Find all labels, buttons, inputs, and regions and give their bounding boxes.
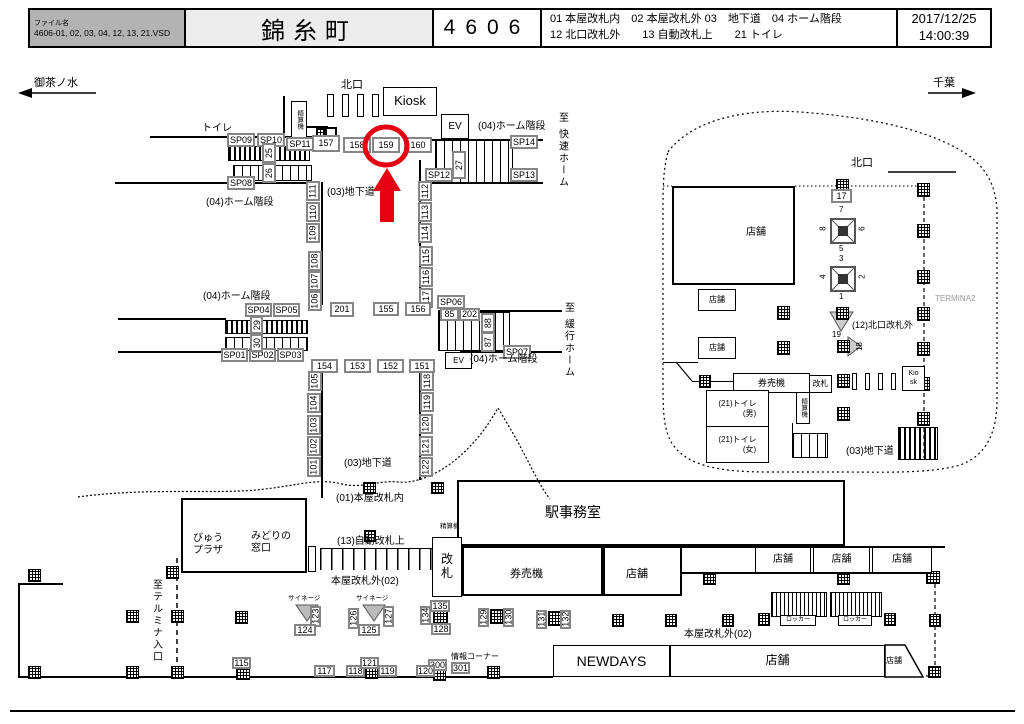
label-110: 110 bbox=[306, 202, 320, 222]
pillar bbox=[928, 666, 941, 678]
label-サイネージ: サイネージ bbox=[288, 595, 320, 602]
wall bbox=[18, 676, 553, 678]
label-113: 113 bbox=[418, 202, 432, 222]
pillar bbox=[917, 224, 930, 238]
pillar bbox=[837, 374, 850, 388]
label-118: 118 bbox=[420, 371, 434, 391]
label-18: 18 bbox=[854, 340, 864, 354]
label-101: 101 bbox=[307, 457, 321, 477]
label-106: 106 bbox=[308, 291, 322, 311]
label-121: 121 bbox=[360, 657, 379, 669]
label-159: 159 bbox=[372, 137, 400, 153]
label-17: 17 bbox=[831, 189, 852, 203]
pillar bbox=[837, 407, 850, 421]
label-TERMINA2: TERMINA2 bbox=[935, 294, 975, 303]
label-(21)トイレ-(女): (21)トイレ (女) bbox=[706, 426, 769, 463]
ticket-gate-slot bbox=[342, 94, 349, 117]
label-(04)ホーム階段: (04)ホーム階段 bbox=[470, 354, 537, 366]
label-店舗: 店舗 bbox=[698, 289, 736, 311]
title-bar: ファイル名 4606-01, 02, 03, 04, 12, 13, 21.VS… bbox=[28, 8, 1000, 48]
label-87: 87 bbox=[481, 332, 495, 352]
label-店舗: 店舗 bbox=[698, 337, 736, 359]
pillar bbox=[917, 270, 930, 284]
label-132: 132 bbox=[560, 610, 571, 629]
ticket-gate-slot bbox=[865, 373, 870, 390]
pillar bbox=[703, 573, 716, 585]
wall bbox=[115, 182, 320, 184]
label-128: 128 bbox=[431, 623, 451, 635]
label-みどりの-窓口: みどりの 窓口 bbox=[251, 531, 291, 554]
label-114: 114 bbox=[418, 223, 432, 243]
label-8: 8 bbox=[818, 223, 828, 235]
label-精算機: 精算機 bbox=[291, 101, 307, 138]
label-119: 119 bbox=[420, 392, 434, 412]
label-ロッカー: ロッカー bbox=[838, 615, 872, 626]
label-至-緩行ホーム: 至 緩行ホーム bbox=[562, 298, 574, 383]
pillar bbox=[722, 614, 734, 627]
label-サイネージ: サイネージ bbox=[356, 595, 388, 602]
ticket-gate-slot bbox=[357, 94, 364, 117]
label-3: 3 bbox=[839, 254, 843, 263]
label-27: 27 bbox=[452, 151, 466, 179]
ticket-gate-slot bbox=[327, 94, 334, 117]
wall bbox=[18, 583, 63, 585]
label-NEWDAYS: NEWDAYS bbox=[553, 645, 670, 677]
label-157: 157 bbox=[312, 135, 340, 152]
pillar bbox=[884, 613, 896, 626]
label-119: 119 bbox=[378, 665, 397, 677]
label-改札: 改札 bbox=[809, 375, 832, 393]
coin-lockers bbox=[771, 592, 827, 617]
pillar bbox=[236, 668, 250, 680]
label-精算機: 精算機 bbox=[440, 523, 460, 530]
file-name-value: 4606-01, 02, 03, 04, 12, 13, 21.VSD bbox=[34, 28, 170, 38]
label-精算機: 精算機 bbox=[796, 392, 810, 424]
label-103: 103 bbox=[307, 415, 321, 435]
label-160: 160 bbox=[404, 137, 432, 153]
label-109: 109 bbox=[306, 223, 320, 243]
station-map: ファイル名 4606-01, 02, 03, 04, 12, 13, 21.VS… bbox=[0, 0, 1024, 724]
pillar bbox=[235, 611, 248, 624]
label-158: 158 bbox=[343, 137, 371, 153]
legend-line-1: 01 本屋改札内 02 本屋改札外 03 地下道 04 ホーム階段 bbox=[550, 12, 842, 28]
label-202: 202 bbox=[459, 308, 480, 321]
label-SP09: SP09 bbox=[227, 133, 255, 147]
label-SP08: SP08 bbox=[227, 176, 255, 190]
pillar bbox=[777, 306, 790, 320]
pillar bbox=[28, 666, 41, 679]
label-(03)地下道: (03)地下道 bbox=[327, 187, 375, 199]
pillar bbox=[699, 375, 711, 388]
label-112: 112 bbox=[418, 181, 432, 201]
pillar bbox=[758, 613, 770, 626]
label-7: 7 bbox=[839, 205, 843, 214]
label-104: 104 bbox=[307, 393, 321, 413]
label-SP11: SP11 bbox=[286, 137, 314, 151]
label-130: 130 bbox=[503, 608, 514, 627]
label-SP04: SP04 bbox=[245, 303, 272, 317]
label-120: 120 bbox=[416, 665, 435, 677]
label-店舗: 店舗 bbox=[813, 547, 870, 573]
label-4: 4 bbox=[818, 271, 828, 283]
label-店舗: 店舗 bbox=[670, 645, 885, 677]
pillar-square-5678 bbox=[831, 219, 855, 243]
label-SP03: SP03 bbox=[277, 348, 304, 362]
stairs bbox=[792, 433, 828, 458]
pillar bbox=[929, 614, 941, 627]
label-EV: EV bbox=[441, 114, 469, 139]
label-(04)ホーム階段: (04)ホーム階段 bbox=[478, 121, 545, 133]
timestamp: 2017/12/25 14:00:39 bbox=[896, 8, 992, 48]
pillar bbox=[837, 340, 850, 353]
ticket-gate-slot bbox=[878, 373, 883, 390]
label-至-快速ホーム: 至 快速ホーム bbox=[556, 103, 568, 198]
label-(04)ホーム階段: (04)ホーム階段 bbox=[206, 197, 273, 209]
label-121: 121 bbox=[419, 436, 433, 456]
label-115: 115 bbox=[419, 246, 433, 266]
label-券売機: 券売機 bbox=[510, 568, 543, 581]
wall bbox=[283, 96, 285, 137]
label-情報コーナー: 情報コーナー bbox=[451, 652, 499, 661]
label-201: 201 bbox=[330, 302, 354, 317]
label-1: 1 bbox=[839, 292, 843, 301]
label-19: 19 bbox=[832, 330, 841, 339]
pillar bbox=[490, 609, 503, 624]
pillar bbox=[917, 307, 930, 321]
label-改-札: 改 札 bbox=[432, 537, 462, 597]
label-(21)トイレ-(男): (21)トイレ (男) bbox=[706, 390, 769, 427]
label-(03)地下道: (03)地下道 bbox=[344, 458, 392, 470]
stairs bbox=[225, 320, 308, 334]
label-SP06: SP06 bbox=[437, 295, 465, 309]
label-155: 155 bbox=[373, 302, 399, 316]
label-29: 29 bbox=[250, 316, 263, 334]
date: 2017/12/25 bbox=[911, 11, 976, 28]
pillar bbox=[917, 412, 930, 426]
label-SP01: SP01 bbox=[221, 348, 248, 362]
pillar bbox=[28, 569, 41, 582]
label-(13)自動改札上: (13)自動改札上 bbox=[337, 536, 405, 548]
label-153: 153 bbox=[344, 359, 371, 373]
station-office bbox=[457, 480, 845, 546]
stairs bbox=[898, 427, 938, 460]
signage-funnel-icon bbox=[363, 605, 385, 621]
label-店舗: 店舗 bbox=[886, 656, 902, 665]
pillar bbox=[665, 614, 677, 627]
label-北口: 北口 bbox=[851, 157, 873, 170]
area-legend: 01 本屋改札内 02 本屋改札外 03 地下道 04 ホーム階段 12 北口改… bbox=[540, 8, 898, 48]
label-(12)北口改札外: (12)北口改札外 bbox=[852, 320, 913, 330]
label-駅事務室: 駅事務室 bbox=[545, 504, 601, 520]
label-115: 115 bbox=[232, 657, 251, 669]
label-151: 151 bbox=[409, 359, 435, 373]
label-152: 152 bbox=[377, 359, 404, 373]
label-SP05: SP05 bbox=[273, 303, 300, 317]
label-102: 102 bbox=[307, 436, 321, 456]
label-116: 116 bbox=[419, 267, 433, 287]
pillar bbox=[166, 566, 179, 579]
label-156: 156 bbox=[405, 302, 431, 316]
north-diagonal-wall bbox=[676, 362, 692, 381]
legend-line-2: 12 北口改札外 13 自動改札上 21 トイレ bbox=[550, 28, 783, 44]
coin-lockers bbox=[830, 592, 882, 617]
ticket-gate-slot bbox=[891, 373, 896, 390]
label-SP13: SP13 bbox=[510, 168, 538, 182]
wall bbox=[663, 362, 698, 363]
label-至テルミナ入口: 至テルミナ入口 bbox=[150, 578, 162, 663]
map-code: 4606 bbox=[432, 8, 542, 48]
label-店舗: 店舗 bbox=[755, 547, 811, 573]
pillar bbox=[837, 573, 850, 585]
time: 14:00:39 bbox=[919, 28, 970, 45]
label-129: 129 bbox=[478, 608, 489, 627]
label-117: 117 bbox=[314, 665, 335, 677]
label-105: 105 bbox=[308, 371, 322, 391]
label-Kio-sk: Kio sk bbox=[902, 366, 925, 391]
ticket-gate-slot bbox=[372, 94, 379, 117]
label-店舗: 店舗 bbox=[626, 568, 648, 581]
north-shop-building bbox=[672, 186, 795, 285]
label-店舗: 店舗 bbox=[872, 547, 932, 573]
label-北口: 北口 bbox=[341, 79, 363, 92]
label-2: 2 bbox=[857, 271, 867, 283]
pillar bbox=[777, 341, 790, 355]
pillar bbox=[126, 610, 139, 623]
pillar bbox=[126, 666, 139, 679]
label-127: 127 bbox=[383, 606, 394, 627]
label-(01)本屋改札内: (01)本屋改札内 bbox=[336, 493, 404, 505]
label-120: 120 bbox=[419, 414, 433, 434]
label-111: 111 bbox=[306, 181, 320, 201]
pillar bbox=[171, 666, 184, 679]
highlight-arrow bbox=[373, 168, 401, 222]
pillar-square-1234 bbox=[831, 267, 855, 291]
direction-right: 千葉 bbox=[933, 74, 955, 90]
label-135: 135 bbox=[430, 600, 450, 612]
file-info: ファイル名 4606-01, 02, 03, 04, 12, 13, 21.VS… bbox=[28, 8, 186, 48]
label-本屋改札外(02): 本屋改札外(02) bbox=[331, 576, 399, 588]
label-85: 85 bbox=[440, 308, 459, 321]
direction-left: 御茶ノ水 bbox=[34, 74, 78, 90]
label-301: 301 bbox=[451, 662, 470, 674]
pillar bbox=[487, 666, 500, 679]
label-154: 154 bbox=[311, 359, 338, 373]
label-EV: EV bbox=[445, 352, 472, 369]
station-name: 錦糸町 bbox=[184, 8, 434, 48]
label-びゅう-プラザ: びゅう プラザ bbox=[193, 533, 223, 556]
wall bbox=[118, 318, 226, 320]
label-Kiosk: Kiosk bbox=[383, 87, 437, 116]
wall bbox=[118, 351, 226, 353]
label-25: 25 bbox=[262, 143, 276, 163]
wall bbox=[10, 710, 1015, 712]
label-122: 122 bbox=[419, 457, 433, 477]
label-(04)ホーム階段: (04)ホーム階段 bbox=[203, 291, 270, 303]
label-134: 134 bbox=[420, 606, 431, 625]
label-26: 26 bbox=[262, 163, 276, 183]
label-30: 30 bbox=[250, 334, 263, 352]
label-88: 88 bbox=[481, 313, 495, 333]
pillar bbox=[917, 183, 930, 197]
pillar bbox=[836, 307, 849, 320]
label-131: 131 bbox=[536, 610, 547, 629]
pillar bbox=[431, 482, 444, 494]
label-SP12: SP12 bbox=[425, 168, 453, 182]
label-本屋改札外(02): 本屋改札外(02) bbox=[684, 629, 752, 641]
pillar bbox=[612, 614, 624, 627]
label-SP14: SP14 bbox=[510, 135, 538, 149]
file-name-label: ファイル名 bbox=[34, 18, 69, 28]
wall bbox=[18, 583, 20, 677]
ticket-gate-slot bbox=[852, 373, 857, 390]
label-108: 108 bbox=[308, 251, 322, 271]
label-6: 6 bbox=[857, 223, 867, 235]
label-(03)地下道: (03)地下道 bbox=[846, 446, 894, 458]
automatic-gates-row bbox=[320, 548, 432, 570]
pillar bbox=[917, 342, 930, 356]
ticket-gate-slot bbox=[308, 546, 316, 572]
label-107: 107 bbox=[308, 271, 322, 291]
label-ロッカー: ロッカー bbox=[780, 615, 816, 626]
label-店舗: 店舗 bbox=[746, 227, 766, 239]
label-5: 5 bbox=[839, 244, 843, 253]
label-125: 125 bbox=[358, 624, 380, 636]
pillar bbox=[171, 610, 184, 623]
label-124: 124 bbox=[294, 624, 316, 636]
